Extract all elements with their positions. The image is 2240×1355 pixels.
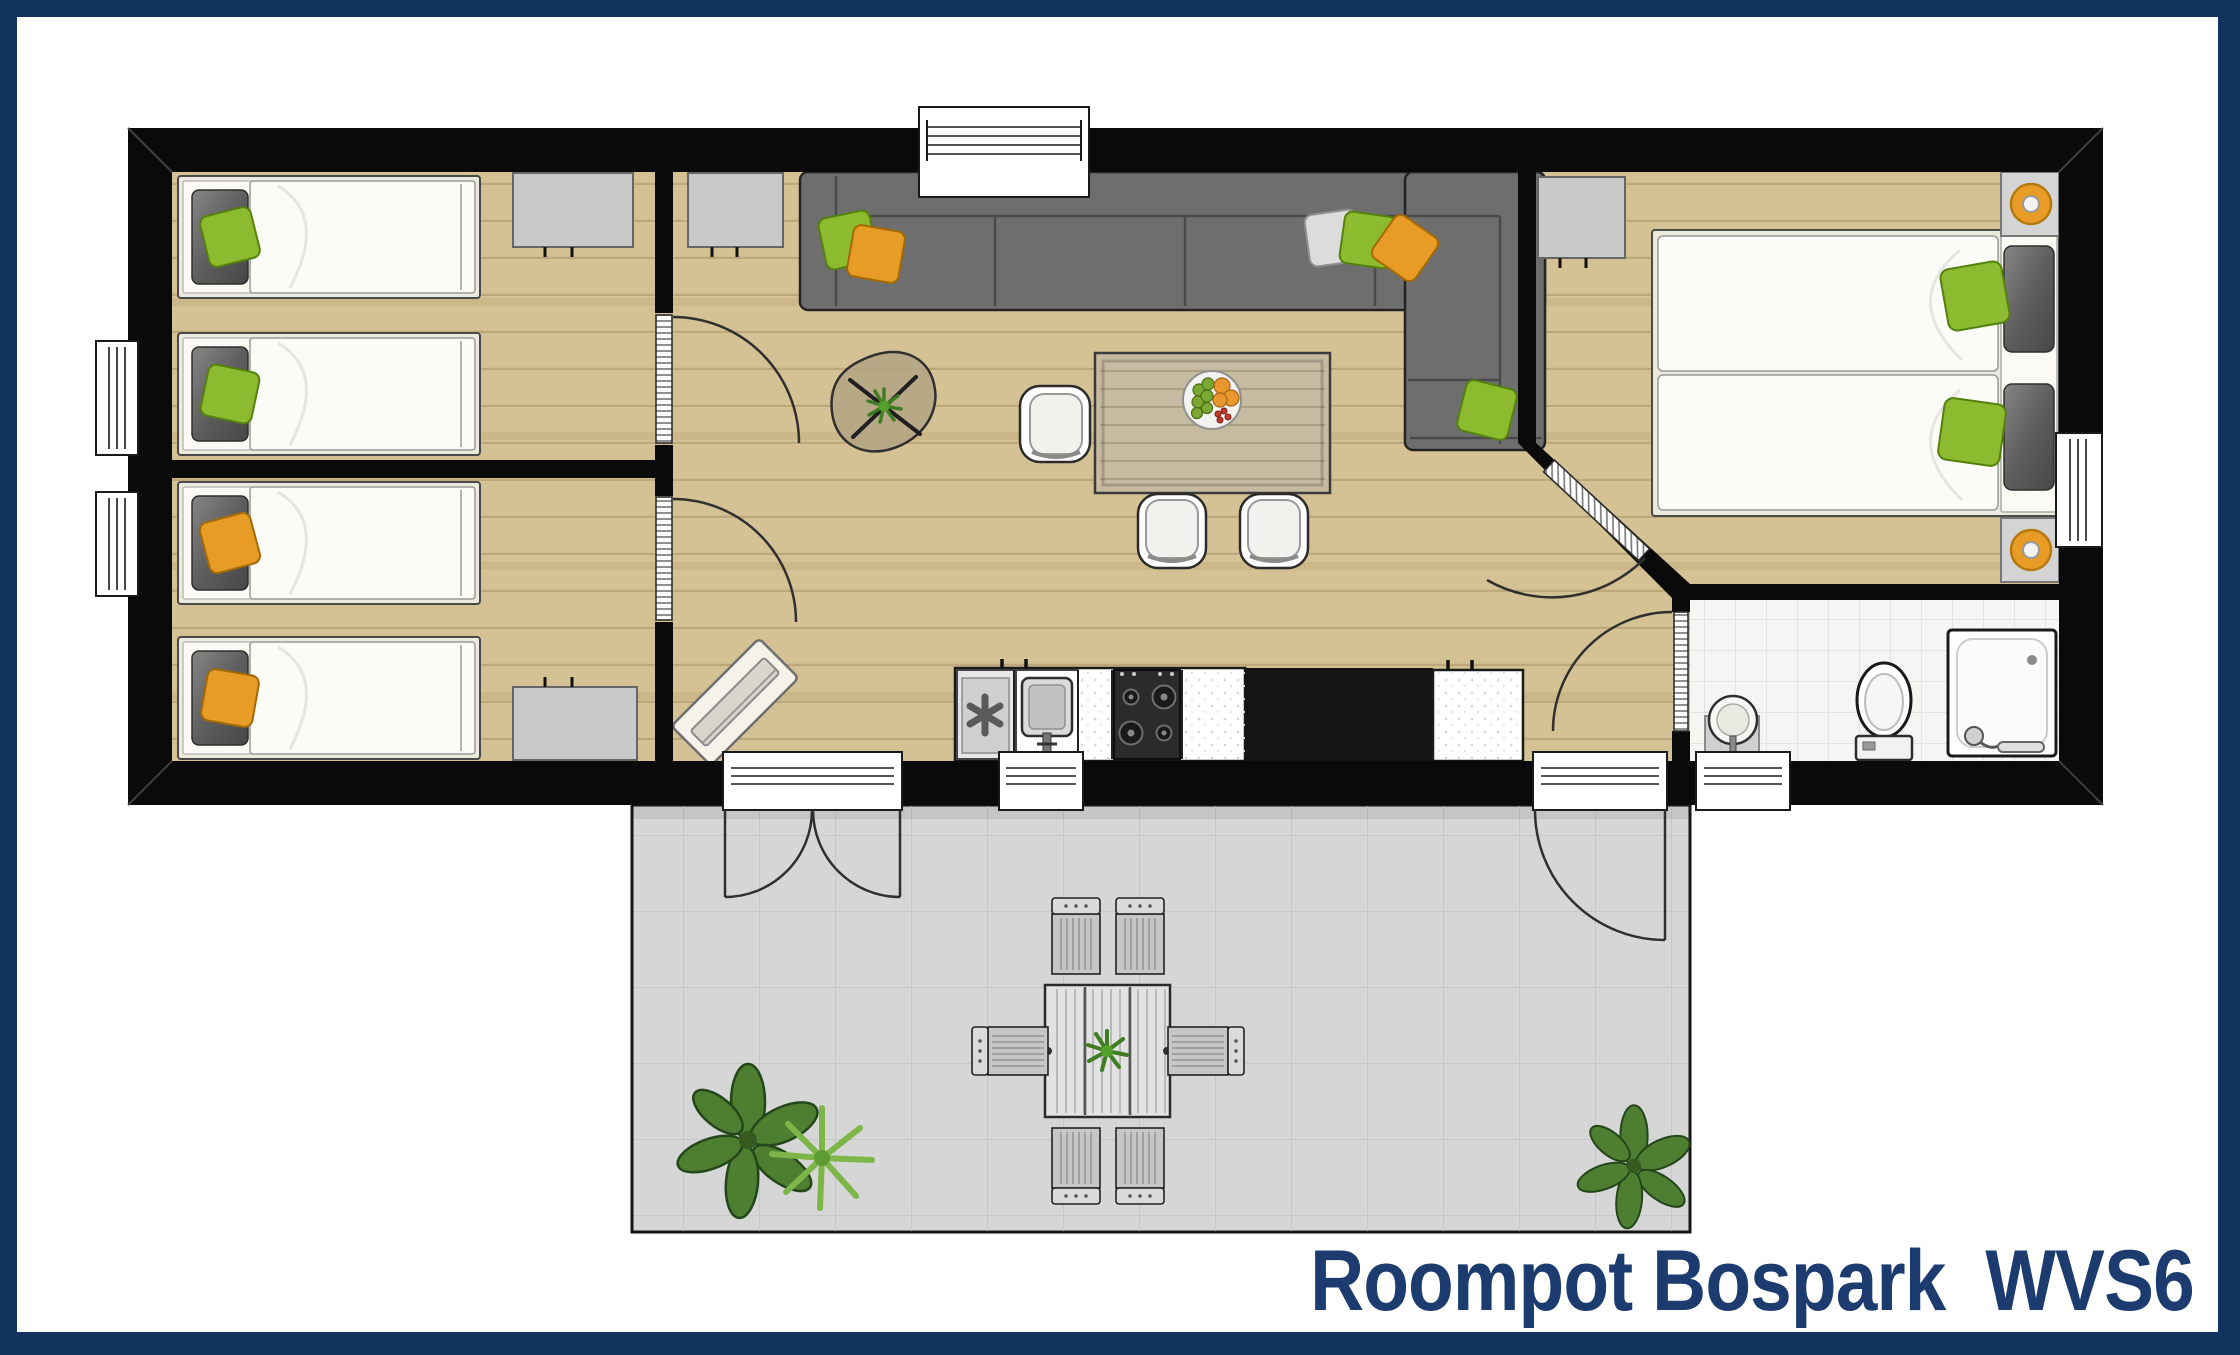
wardrobe: [1538, 177, 1625, 268]
double-bed: [1652, 230, 2059, 516]
floor-plan-svg: [0, 0, 2240, 1355]
pillow: [1937, 397, 2007, 467]
nightstand: [2001, 518, 2059, 582]
wardrobe: [513, 173, 633, 257]
window-master-bedroom: [2056, 433, 2102, 547]
plan-title: Roompot Bospark WVS6: [1310, 1232, 2194, 1331]
dining-chair: [1020, 386, 1090, 462]
kitchen-sink: [1016, 670, 1078, 759]
window-bathroom: [1696, 752, 1790, 810]
window-kitchen: [999, 752, 1083, 810]
window-bedroom1: [96, 341, 138, 455]
pillow: [846, 224, 906, 284]
pillow: [199, 363, 261, 425]
pillow: [198, 205, 261, 268]
fruit-bowl: [1183, 371, 1241, 429]
pillow: [200, 668, 260, 728]
pillow: [1455, 378, 1518, 441]
floor-plan-page: Roompot Bospark WVS6: [0, 0, 2240, 1355]
cabinet: [513, 677, 637, 760]
dining-chair: [1240, 494, 1308, 568]
shower: [1948, 630, 2056, 756]
gas-hob: [1114, 670, 1180, 759]
cabinet: [688, 173, 783, 257]
terrace-table: [1044, 985, 1171, 1117]
nightstand: [2001, 172, 2059, 236]
fridge-freezer: [957, 670, 1014, 759]
terrace-chair: [1052, 1128, 1100, 1204]
kitchen-counter: [955, 659, 1523, 761]
pillow: [1939, 260, 2011, 332]
dining-chair: [1138, 494, 1206, 568]
terrace-chair: [1116, 1128, 1164, 1204]
washbasin: [1705, 696, 1759, 760]
terrace-chair: [1052, 898, 1100, 974]
window-living-room: [919, 107, 1089, 197]
dining-table: [1095, 353, 1330, 493]
toilet: [1856, 663, 1912, 760]
terrace-chair: [972, 1027, 1048, 1075]
window-bedroom2: [96, 492, 138, 596]
terrace-chair: [1116, 898, 1164, 974]
terrace-chair: [1168, 1027, 1244, 1075]
